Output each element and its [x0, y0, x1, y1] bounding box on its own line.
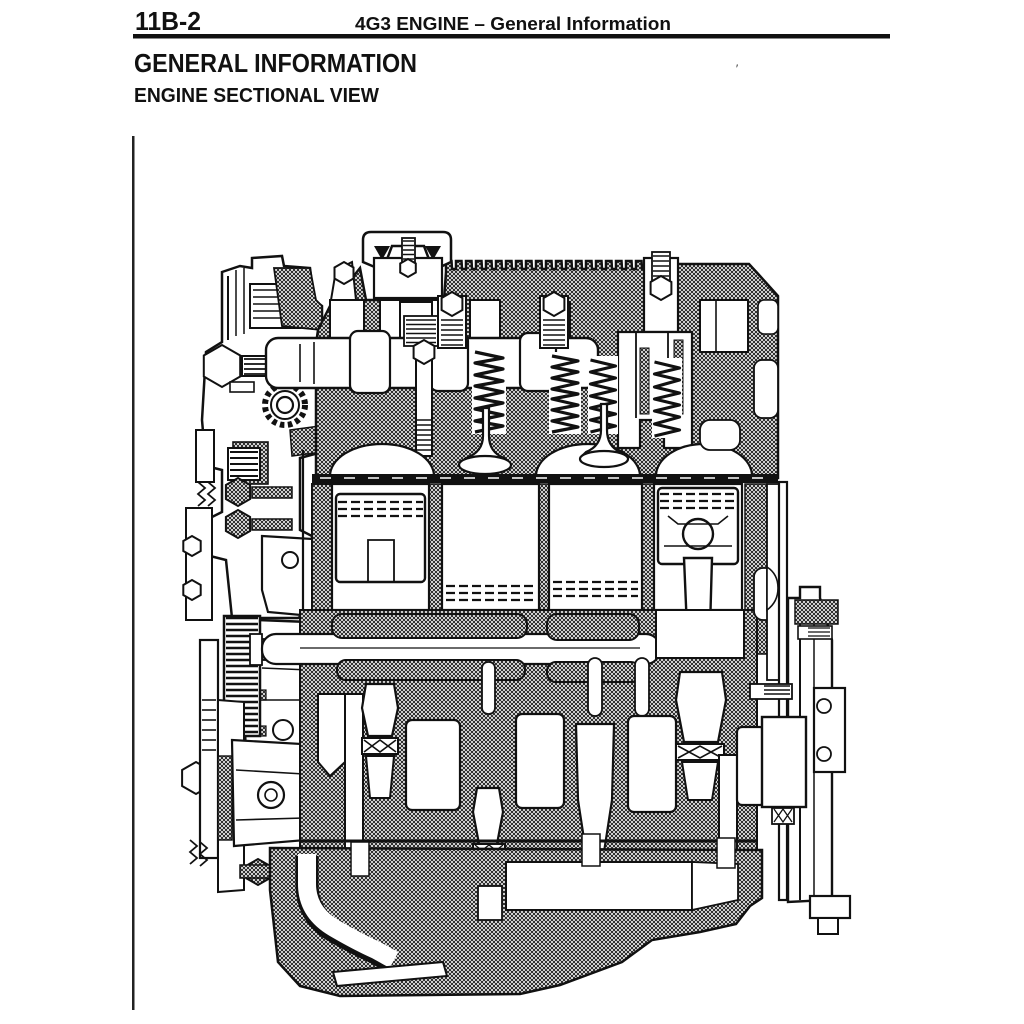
svg-text:GENERAL INFORMATION: GENERAL INFORMATION — [134, 48, 417, 78]
svg-text:ENGINE SECTIONAL VIEW: ENGINE SECTIONAL VIEW — [134, 85, 379, 107]
svg-text:′: ′ — [736, 63, 738, 75]
svg-text:4G3 ENGINE – General Informati: 4G3 ENGINE – General Information — [355, 14, 671, 34]
svg-text:11B-2: 11B-2 — [135, 6, 201, 36]
